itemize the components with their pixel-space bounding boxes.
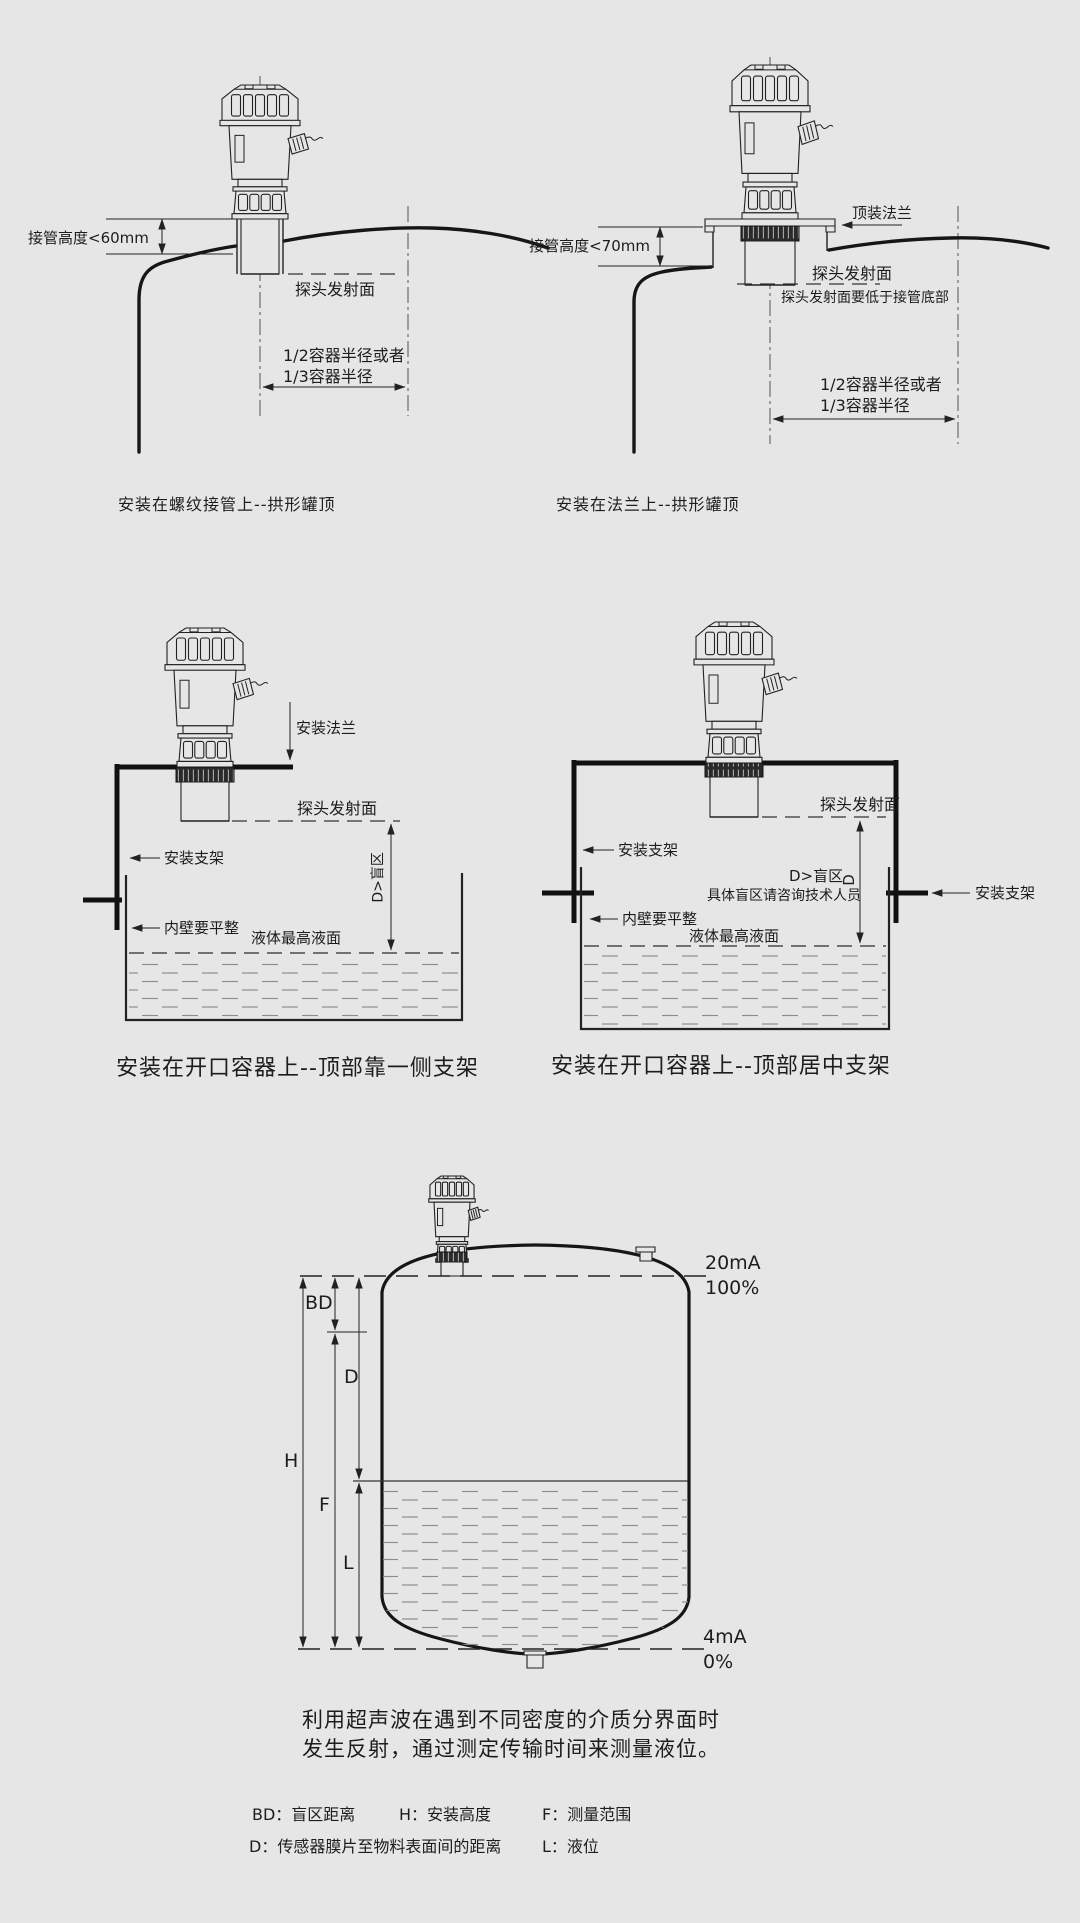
liquid-hatch (584, 955, 886, 1027)
probe-surface-label: 探头发射面 (812, 264, 892, 283)
liquid-hatch (383, 1490, 688, 1652)
blind-note-label: 具体盲区请咨询技术人员 (707, 888, 861, 905)
bracket-right-label: 安装支架 (975, 884, 1035, 902)
probe-surface-label: 探头发射面 (295, 280, 375, 299)
dimension-d-label: D (344, 1366, 359, 1389)
top-flange-plate (705, 219, 835, 226)
output-4ma-label: 4mA (703, 1626, 747, 1649)
radius-label-1: 1/2容器半径或者 (283, 346, 405, 365)
radius-label-2: 1/3容器半径 (820, 396, 910, 415)
dimension-l-label: L (343, 1552, 354, 1575)
vent-nozzle (636, 1247, 655, 1252)
probe-note-label: 探头发射面要低于接管底部 (781, 290, 949, 307)
liquid-hatch (129, 962, 459, 1018)
drain-nozzle (524, 1651, 546, 1655)
level-0-label: 0% (703, 1651, 733, 1674)
dimension-f-label: F (319, 1494, 330, 1517)
description-line-1: 利用超声波在遇到不同密度的介质分界面时 (302, 1708, 720, 1733)
caption-flange-mount: 安装在法兰上--拱形罐顶 (556, 495, 740, 514)
dimension-h-label: H (284, 1450, 298, 1473)
pipe-height-label: 接管高度<60mm (28, 229, 148, 247)
mount-flange-label: 安装法兰 (296, 719, 356, 737)
bracket-label: 安装支架 (164, 849, 224, 867)
diagram-open-vessel-side-bracket (83, 628, 462, 1020)
legend-l: L：液位 (542, 1837, 599, 1856)
probe-surface-label: 探头发射面 (297, 799, 377, 818)
legend-h: H：安装高度 (399, 1805, 491, 1824)
output-20ma-label: 20mA (705, 1252, 761, 1275)
top-flange-label: 顶装法兰 (852, 204, 912, 222)
wall-label: 内壁要平整 (622, 910, 697, 928)
legend-d: D：传感器膜片至物料表面间的距离 (249, 1837, 501, 1856)
drawing-page: 接管高度<60mm 探头发射面 1/2容器半径或者 1/3容器半径 安装在螺纹接… (0, 0, 1080, 1923)
caption-side-bracket: 安装在开口容器上--顶部靠一侧支架 (116, 1056, 479, 1082)
diagram-threaded-pipe (106, 76, 548, 452)
blind-zone-label: D>盲区 (789, 867, 843, 885)
legend-bd: BD：盲区距离 (252, 1805, 355, 1824)
legend-f: F：测量范围 (542, 1805, 631, 1824)
bracket-left-label: 安装支架 (618, 841, 678, 859)
wall-label: 内壁要平整 (164, 919, 239, 937)
diagram-canvas (0, 0, 1080, 1923)
diagram-measuring-range-tank (298, 1176, 712, 1668)
blind-dimension-letter: D (840, 872, 858, 888)
caption-center-bracket: 安装在开口容器上--顶部居中支架 (551, 1054, 891, 1080)
diagram-open-vessel-center-bracket (542, 622, 970, 1029)
pipe-height-label: 接管高度<70mm (528, 237, 650, 255)
max-level-label: 液体最高液面 (689, 927, 779, 945)
dimension-bd-label: BD (305, 1292, 333, 1315)
probe-surface-label: 探头发射面 (820, 795, 900, 814)
level-100-label: 100% (705, 1277, 759, 1300)
dimension-lines (303, 1278, 367, 1647)
radius-label-2: 1/3容器半径 (283, 367, 373, 386)
radius-label-1: 1/2容器半径或者 (820, 375, 942, 394)
caption-threaded-pipe: 安装在螺纹接管上--拱形罐顶 (118, 495, 336, 514)
max-level-label: 液体最高液面 (251, 929, 341, 947)
description-line-2: 发生反射，通过测定传输时间来测量液位。 (302, 1737, 720, 1762)
blind-zone-label: D>盲区 (371, 842, 388, 912)
